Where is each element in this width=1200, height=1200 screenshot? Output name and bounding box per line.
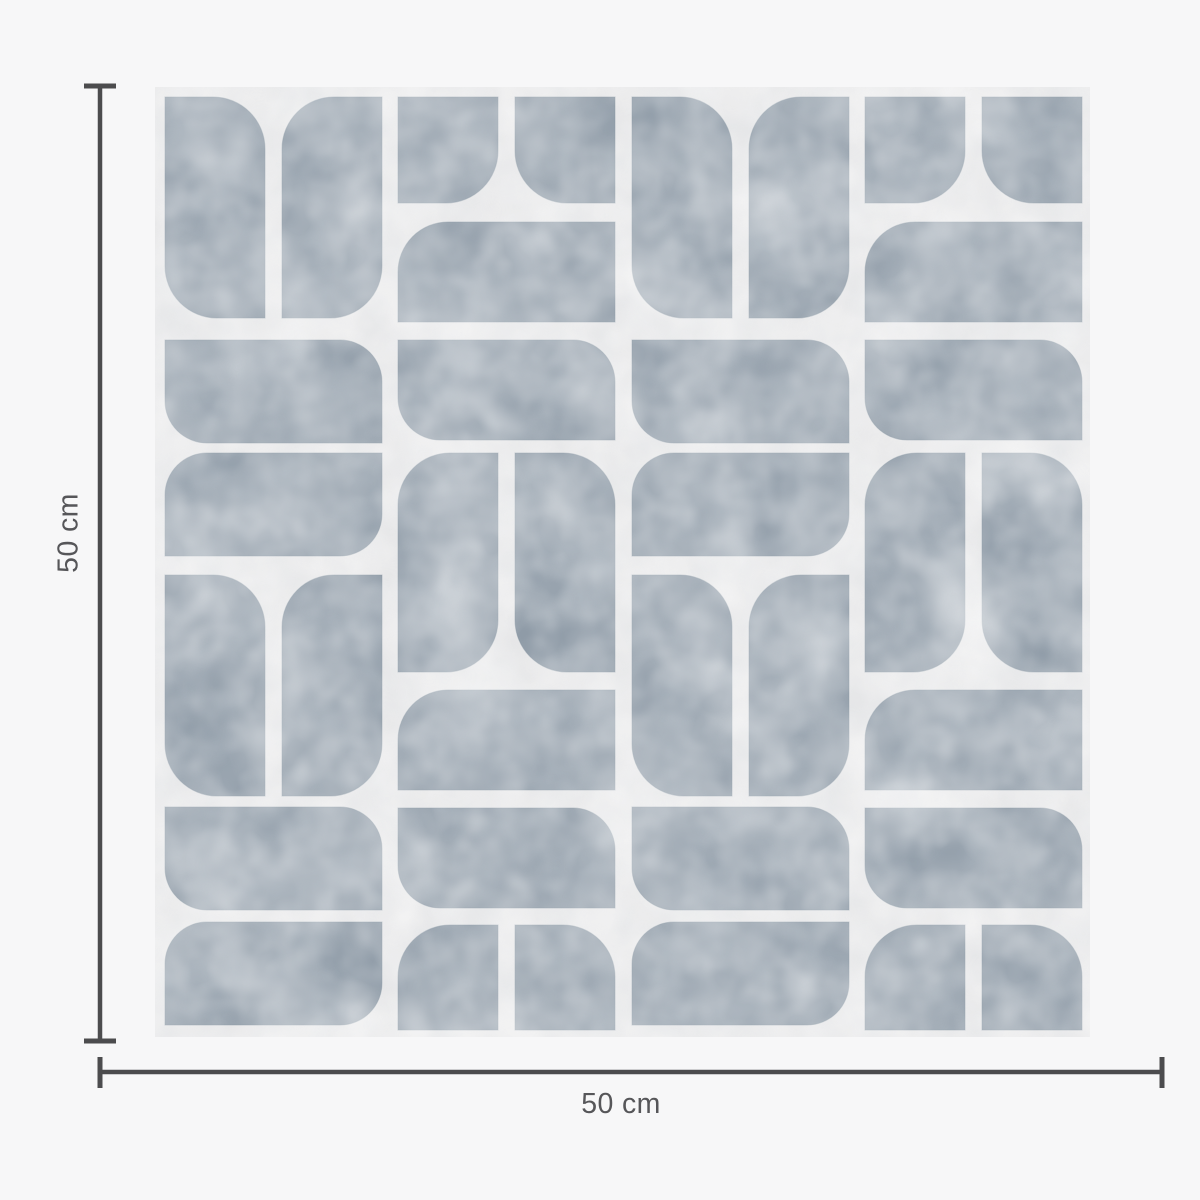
horizontal-dimension-label: 50 cm bbox=[581, 1088, 661, 1120]
watercolor-texture bbox=[155, 87, 1090, 1037]
page: { "page": { "background": "#f7f7f8" }, "… bbox=[0, 0, 1200, 1200]
vertical-dimension-label: 50 cm bbox=[53, 493, 85, 573]
product-image: 50 cm 50 cm bbox=[0, 0, 1200, 1200]
